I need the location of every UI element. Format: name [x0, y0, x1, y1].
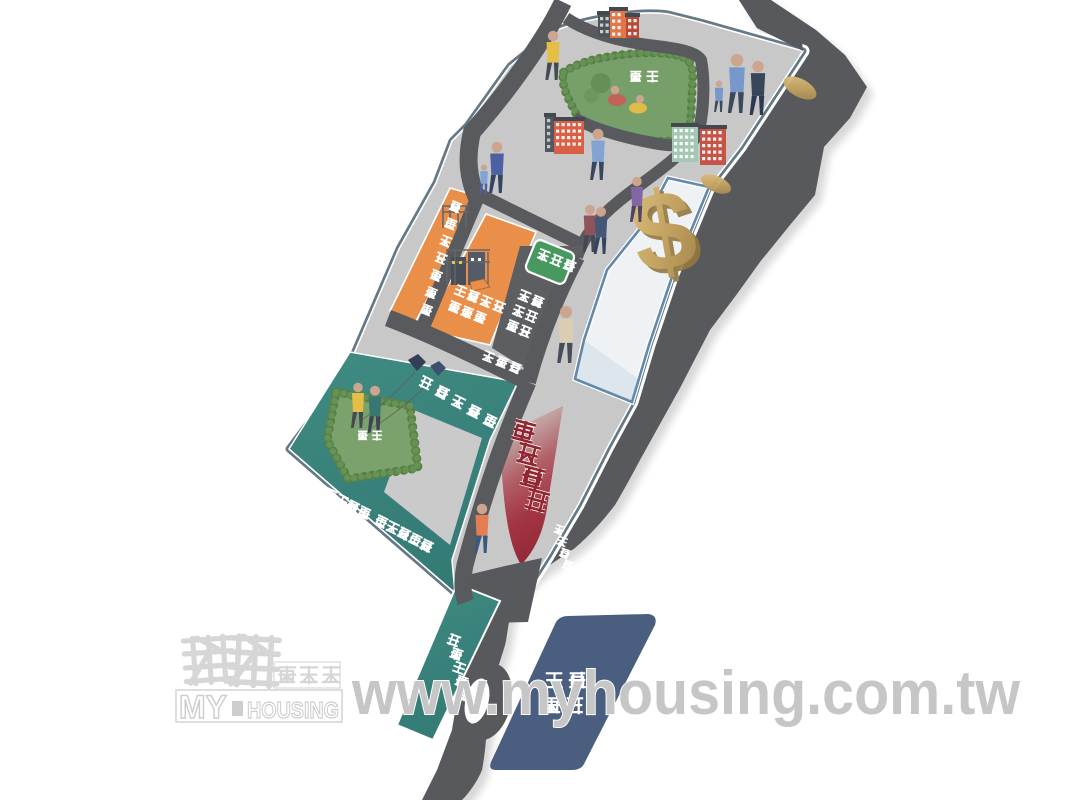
svg-text:www.myhousing.com.tw: www.myhousing.com.tw [351, 659, 1021, 728]
svg-text:HOUSING: HOUSING [247, 697, 339, 723]
svg-text:MY: MY [179, 689, 227, 725]
